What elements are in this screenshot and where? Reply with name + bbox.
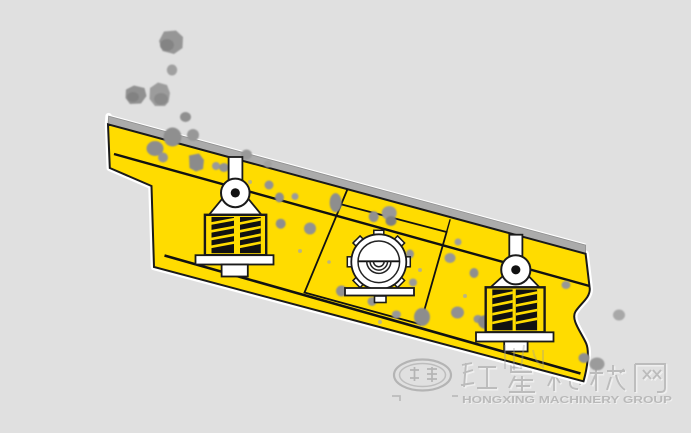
svg-text:HONGXING MACHINERY GROUP: HONGXING MACHINERY GROUP xyxy=(462,394,672,406)
